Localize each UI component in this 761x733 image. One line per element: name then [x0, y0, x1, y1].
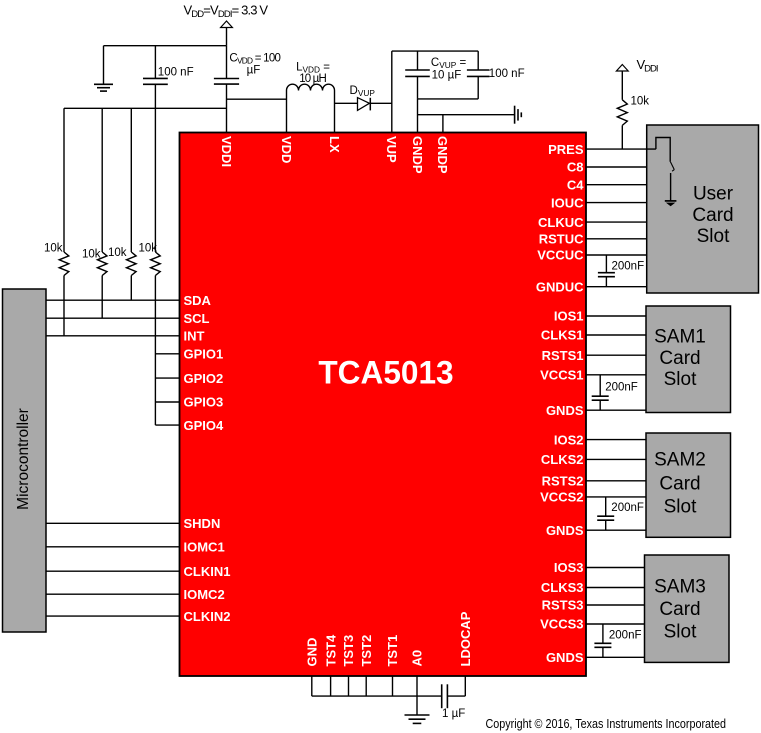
svg-text:GPIO4: GPIO4 — [184, 418, 225, 433]
svg-text:GPIO1: GPIO1 — [184, 347, 224, 362]
svg-text:GNDP: GNDP — [410, 136, 425, 174]
svg-text:200nF: 200nF — [605, 381, 638, 393]
svg-text:GPIO3: GPIO3 — [184, 395, 224, 410]
svg-text:IOS3: IOS3 — [554, 560, 584, 575]
svg-text:VDDI: VDDI — [219, 136, 234, 167]
svg-text:10k: 10k — [108, 247, 127, 259]
svg-text:10k: 10k — [138, 243, 157, 255]
svg-text:CLKIN2: CLKIN2 — [184, 609, 231, 624]
svg-text:VCCS3: VCCS3 — [540, 617, 583, 632]
svg-text:TST1: TST1 — [385, 635, 400, 667]
svg-text:IOS1: IOS1 — [554, 309, 584, 324]
svg-text:PRES: PRES — [548, 142, 584, 157]
svg-text:VUP: VUP — [384, 136, 399, 163]
svg-text:SDA: SDA — [184, 293, 212, 308]
svg-text:1 µF: 1 µF — [442, 708, 465, 720]
svg-text:10 µF: 10 µF — [432, 70, 462, 82]
svg-text:CLKUC: CLKUC — [538, 215, 584, 230]
svg-text:200nF: 200nF — [612, 261, 645, 273]
svg-text:GND: GND — [305, 638, 320, 667]
svg-text:GNDS: GNDS — [546, 403, 584, 418]
svg-text:RSTUC: RSTUC — [539, 232, 584, 247]
svg-text:VDD: VDD — [279, 136, 294, 163]
svg-text:C8: C8 — [567, 160, 584, 175]
svg-text:LX: LX — [327, 136, 342, 153]
svg-text:SHDN: SHDN — [184, 516, 221, 531]
svg-text:RSTS1: RSTS1 — [542, 348, 584, 363]
svg-text:Microcontroller: Microcontroller — [15, 408, 32, 510]
svg-text:200nF: 200nF — [609, 630, 642, 642]
svg-text:TST2: TST2 — [359, 635, 374, 667]
svg-text:IOS2: IOS2 — [554, 432, 584, 447]
svg-text:TCA5013: TCA5013 — [318, 355, 453, 391]
svg-text:100 nF: 100 nF — [489, 68, 525, 80]
svg-text:10 µH: 10 µH — [299, 73, 327, 85]
svg-text:VCCUC: VCCUC — [537, 248, 584, 263]
svg-text:CLKS3: CLKS3 — [541, 580, 584, 595]
svg-text:10k: 10k — [631, 96, 650, 108]
svg-text:RSTS3: RSTS3 — [542, 598, 584, 613]
svg-text:IOMC1: IOMC1 — [184, 540, 225, 555]
svg-text:µF: µF — [247, 65, 261, 77]
svg-text:Copyright © 2016, Texas Instru: Copyright © 2016, Texas Instruments Inco… — [486, 716, 727, 731]
svg-text:TST3: TST3 — [341, 635, 356, 667]
svg-text:SCL: SCL — [184, 311, 210, 326]
svg-text:CLKIN1: CLKIN1 — [184, 564, 231, 579]
svg-text:CLKS2: CLKS2 — [541, 452, 584, 467]
svg-text:IOMC2: IOMC2 — [184, 587, 225, 602]
svg-text:GNDP: GNDP — [435, 136, 450, 174]
svg-text:GNDUC: GNDUC — [536, 279, 584, 294]
svg-text:A0: A0 — [410, 650, 425, 667]
svg-text:10k: 10k — [82, 249, 101, 261]
svg-text:GNDS: GNDS — [546, 650, 584, 665]
svg-text:IOUC: IOUC — [551, 195, 584, 210]
svg-text:RSTS2: RSTS2 — [542, 474, 584, 489]
svg-text:VCCS1: VCCS1 — [540, 368, 583, 383]
svg-text:GNDS: GNDS — [546, 523, 584, 538]
svg-text:INT: INT — [184, 329, 205, 344]
svg-text:GPIO2: GPIO2 — [184, 371, 224, 386]
svg-text:100 nF: 100 nF — [158, 67, 194, 79]
svg-text:10k: 10k — [44, 243, 63, 255]
svg-text:TST4: TST4 — [323, 634, 338, 667]
svg-text:200nF: 200nF — [611, 502, 644, 514]
svg-text:LDOCAP: LDOCAP — [458, 611, 473, 666]
svg-text:C4: C4 — [567, 177, 584, 192]
svg-text:CLKS1: CLKS1 — [541, 328, 584, 343]
svg-text:UserCardSlot: UserCardSlot — [692, 183, 733, 247]
svg-text:VCCS2: VCCS2 — [540, 490, 583, 505]
